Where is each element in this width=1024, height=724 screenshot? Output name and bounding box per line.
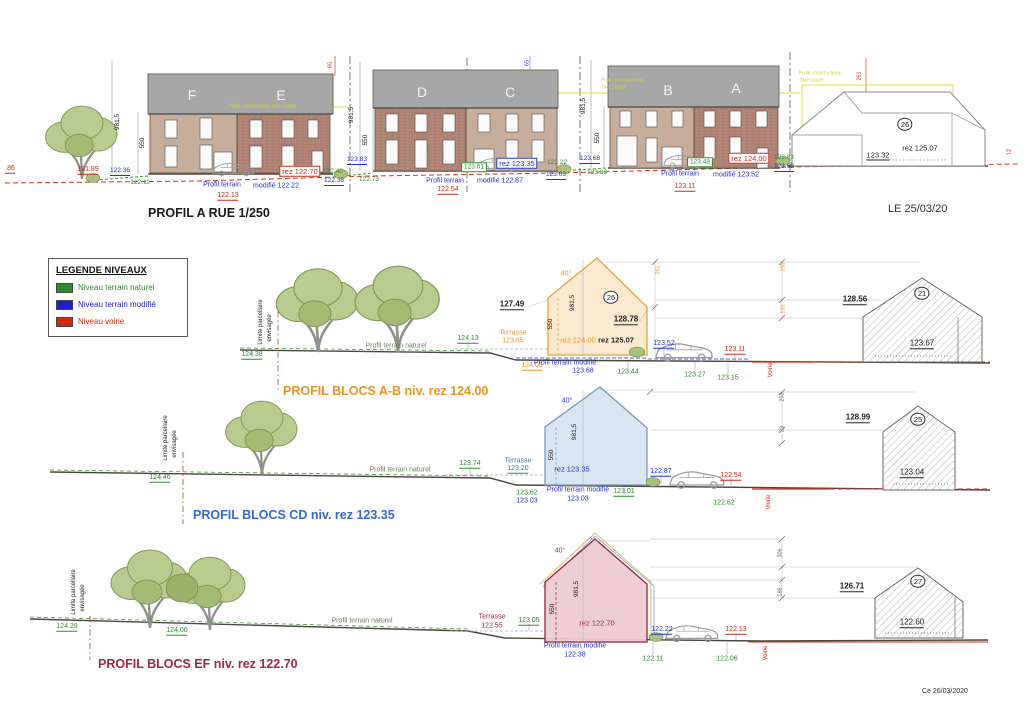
annotation-label: D xyxy=(417,85,427,99)
annotation-label: 40° xyxy=(555,548,566,555)
annotation-label: 122.06 xyxy=(716,656,737,663)
annotation-label: face projet xyxy=(800,79,823,84)
annotation-label: 124.00 xyxy=(166,627,187,636)
annotation-label: 12 xyxy=(1007,149,1013,155)
annotation-label: 122.55 xyxy=(481,623,502,630)
annotation-label: Voirie xyxy=(763,645,769,660)
annotation-label: 128.99 xyxy=(846,413,870,423)
legend-title: LEGENDE NIVEAUX xyxy=(56,265,180,276)
annotation-label: Terrasse xyxy=(500,330,527,337)
annotation-label: Profil constructions face projet xyxy=(229,105,296,110)
annotation-label: envisagée xyxy=(172,430,178,457)
house-number-badge: 25 xyxy=(910,413,925,426)
annotation-label: 122.40 xyxy=(323,169,343,176)
annotation-label: A xyxy=(731,81,740,95)
annotation-label: Voirie xyxy=(768,362,774,377)
annotation-label: 65 xyxy=(525,60,531,66)
annotation-label: 123.83 xyxy=(774,155,794,162)
annotation-label: rez 123.35 xyxy=(496,158,537,169)
annotation-label: envisagée xyxy=(80,584,86,611)
annotation-label: 123.01 xyxy=(461,162,487,172)
annotation-label: 123.68 xyxy=(580,156,600,164)
legend-item-label: Niveau terrain naturel xyxy=(78,284,154,292)
house-number-badge: 27 xyxy=(910,575,925,588)
annotation-label: 127.49 xyxy=(500,300,524,310)
annotation-label: 123.52 xyxy=(653,340,674,349)
annotation-label: 122.38 xyxy=(564,652,585,659)
annotation-label: 123.67 xyxy=(910,339,934,349)
annotation-label: 65 xyxy=(328,62,334,68)
annotation-label: 123.03 xyxy=(567,496,588,503)
annotation-label: rez 124.00 xyxy=(560,336,595,344)
annotation-label: 123.15 xyxy=(717,375,738,382)
annotation-label: 261 xyxy=(857,71,863,80)
annotation-label: 122.60 xyxy=(900,618,924,628)
annotation-label: 124.29 xyxy=(56,623,77,632)
annotation-label: Profil terrain xyxy=(203,182,241,189)
house-number-badge: 26 xyxy=(603,291,618,304)
annotation-label: Voirie xyxy=(766,494,772,509)
annotation-label: 981,5 xyxy=(574,581,581,597)
annotation-label: Limite parcellaire xyxy=(258,299,264,344)
annotation-label: 123.32 xyxy=(867,152,890,161)
annotation-label: Profil terrain modifié xyxy=(534,360,596,367)
rue-profile-title: PROFIL A RUE 1/250 xyxy=(148,206,270,220)
annotation-label: 40° xyxy=(562,398,573,405)
annotation-label: 124.38 xyxy=(241,351,262,360)
annotation-label: 122.36 xyxy=(110,168,130,176)
annotation-label: Profil constructions xyxy=(601,79,643,84)
annotation-label: 550 xyxy=(140,138,147,149)
annotation-label: Limite parcellaire xyxy=(71,569,77,614)
annotation-label: 261 xyxy=(656,265,662,274)
annotation-label: 122.54 xyxy=(437,186,458,195)
green-swatch-icon xyxy=(56,283,73,293)
annotation-label: 122.54 xyxy=(720,472,741,481)
annotation-label: face projet xyxy=(602,86,625,91)
annotation-label: 123.74 xyxy=(459,460,480,469)
annotation-label: 123.04 xyxy=(900,468,924,478)
profil-ef-title: PROFIL BLOCS EF niv. rez 122.70 xyxy=(98,657,298,671)
annotation-label: 123.11 xyxy=(725,346,746,355)
annotation-label: 123.22 xyxy=(547,160,567,167)
annotation-label: F xyxy=(188,88,197,102)
annotation-label: 186 xyxy=(778,587,784,596)
annotation-label: 126.71 xyxy=(840,582,864,592)
annotation-label: 123.44 xyxy=(617,369,638,376)
annotation-label: Profil terrain xyxy=(426,178,464,185)
profil-ab-title: PROFIL BLOCS A-B niv. rez 124.00 xyxy=(283,384,488,398)
annotation-label: 981,5 xyxy=(570,295,577,311)
annotation-label: modifié 122.87 xyxy=(477,178,523,185)
annotation-label: 123.62 xyxy=(516,490,537,497)
annotation-label: modifié 123.52 xyxy=(713,172,759,179)
annotation-label: 122.11 xyxy=(130,180,149,187)
annotation-label: 550 xyxy=(548,319,555,330)
annotation-label: 128.78 xyxy=(614,315,638,325)
annotation-label: 121.89 xyxy=(77,166,98,175)
annotation-label: 124.13 xyxy=(457,335,478,344)
annotation-label: E xyxy=(276,88,285,102)
annotation-label: 550 xyxy=(595,133,602,144)
annotation-label: 550 xyxy=(550,604,557,615)
annotation-label: 124.46 xyxy=(149,474,170,483)
annotation-label: 128.56 xyxy=(843,295,867,305)
annotation-label: Profil terrain modifié xyxy=(544,643,606,650)
annotation-label: 123.36 xyxy=(587,170,607,177)
annotation-label: 123.11 xyxy=(675,183,696,192)
house-number-badge: 26 xyxy=(897,118,912,131)
annotation-label: 122.62 xyxy=(713,500,734,507)
blue-swatch-icon xyxy=(56,300,73,310)
annotation-label: rez 123.35 xyxy=(554,465,589,473)
annotation-label: Terrasse xyxy=(479,614,506,621)
legend-box: LEGENDE NIVEAUX Niveau terrain naturel N… xyxy=(48,258,188,337)
annotation-label: Profil terrain naturel xyxy=(365,343,426,350)
annotation-label: 123.83 xyxy=(347,157,367,165)
annotation-label: rez 125.07 xyxy=(902,144,937,152)
annotation-label: 981,5 xyxy=(581,98,588,114)
annotation-label: Profil terrain modifié xyxy=(547,487,609,494)
red-swatch-icon xyxy=(56,317,73,327)
annotation-label: 550 xyxy=(363,135,370,146)
annotation-label: rez 125.07 xyxy=(598,336,634,344)
annotation-label: 122.38 xyxy=(324,178,344,186)
annotation-label: 123.27 xyxy=(684,372,705,379)
annotation-label: 122.11 xyxy=(643,656,664,663)
annotation-label: 981,5 xyxy=(349,107,356,123)
annotation-label: 122.87 xyxy=(650,468,671,477)
annotation-label: envisagée xyxy=(267,314,273,341)
annotation-label: 131 xyxy=(781,304,787,313)
annotation-label: 981,5 xyxy=(572,424,579,440)
architectural-drawing: .86121.89981,5550FEProfil constructions … xyxy=(0,0,1024,724)
annotation-label: Profil terrain naturel xyxy=(369,467,430,474)
annotation-label: 122.73 xyxy=(359,177,379,184)
annotation-label: modifié 122.22 xyxy=(253,183,299,190)
legend-item-terrain-modifie: Niveau terrain modifié xyxy=(56,300,180,310)
annotation-label: 122.13 xyxy=(217,192,238,201)
annotation-label: Limite parcellaire xyxy=(163,415,169,460)
annotation-label: 123.03 xyxy=(546,172,566,180)
annotation-label: rez 124.00 xyxy=(728,153,769,164)
house-number-badge: 21 xyxy=(914,287,929,300)
annotation-label: 306 xyxy=(778,548,784,557)
annotation-label: 123.05 xyxy=(518,617,539,626)
profil-cd-title: PROFIL BLOCS CD niv. rez 123.35 xyxy=(193,508,395,522)
annotation-label: Profil constructions xyxy=(799,72,841,77)
annotation-label: Profil terrain naturel xyxy=(331,618,392,625)
annotation-label: 205 xyxy=(781,262,787,271)
legend-item-voirie: Niveau voirie xyxy=(56,317,180,327)
annotation-label: 123.01 xyxy=(613,488,634,497)
annotation-label: 550 xyxy=(549,450,556,461)
annotation-label: 123.20 xyxy=(507,465,528,474)
legend-item-label: Niveau voirie xyxy=(78,318,124,326)
annotation-label: C xyxy=(505,85,515,99)
annotation-label: 40° xyxy=(561,271,572,278)
annotation-label: .86 xyxy=(5,165,15,174)
date-bottom: Ce 26/03/2020 xyxy=(922,688,968,695)
annotation-label: Profil terrain xyxy=(661,171,699,178)
annotation-label: rez 122.70 xyxy=(579,619,614,627)
annotation-label: 123.03 xyxy=(516,498,537,505)
date-top: LE 25/03/20 xyxy=(888,203,947,215)
annotation-label: B xyxy=(663,83,672,97)
annotation-label: Terrasse xyxy=(505,458,532,465)
annotation-label: rez 122.70 xyxy=(279,166,320,177)
annotation-label: 23 xyxy=(780,426,786,432)
legend-item-label: Niveau terrain modifié xyxy=(78,301,156,309)
legend-item-terrain-naturel: Niveau terrain naturel xyxy=(56,283,180,293)
annotation-label: 981,5 xyxy=(115,114,122,130)
annotation-label: 123.85 xyxy=(502,338,523,345)
annotation-label: 123.48 xyxy=(687,157,713,167)
annotation-label: 123.68 xyxy=(774,164,794,172)
annotation-label: 122.13 xyxy=(725,626,746,635)
annotation-label: 203 xyxy=(780,392,786,401)
annotation-layer: .86121.89981,5550FEProfil constructions … xyxy=(0,0,1024,724)
annotation-label: 122.22 xyxy=(651,626,672,635)
annotation-label: 123.68 xyxy=(572,368,593,375)
